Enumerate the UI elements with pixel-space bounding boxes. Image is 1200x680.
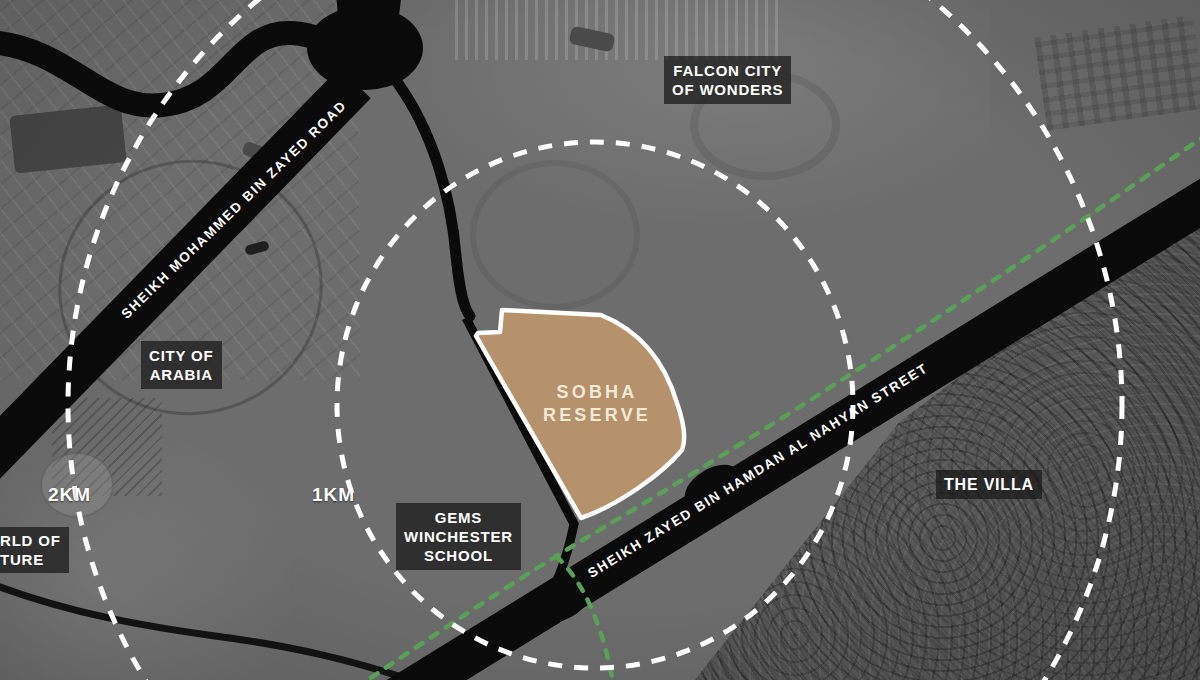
label-city-of-arabia-line2: ARABIA [149, 365, 214, 384]
label-falcon-city-line2: OF WONDERS [672, 80, 783, 99]
label-falcon-city-line1: FALCON CITY [672, 61, 783, 80]
label-gems-school: GEMS WINCHESTER SCHOOL [396, 503, 521, 570]
north-road-stub [336, 0, 402, 54]
radius-marker-2km: 2KM [48, 484, 91, 506]
label-world-of-partial: RLD OF TURE [0, 527, 69, 573]
label-gems-school-line1: GEMS [404, 508, 513, 527]
sobha-reserve-line2: RESERVE [497, 404, 697, 427]
label-the-villa-line1: THE VILLA [944, 475, 1034, 494]
label-gems-school-line3: SCHOOL [404, 546, 513, 565]
radius-marker-1km: 1KM [312, 484, 355, 506]
label-city-of-arabia: CITY OF ARABIA [141, 341, 222, 389]
label-falcon-city: FALCON CITY OF WONDERS [664, 56, 791, 104]
label-the-villa: THE VILLA [936, 470, 1042, 499]
hamdan-street [378, 191, 1200, 680]
label-city-of-arabia-line1: CITY OF [149, 346, 214, 365]
label-world-of-line1: RLD OF [0, 531, 61, 550]
location-map: SHEIKH MOHAMMED BIN ZAYED ROAD SHEIKH ZA… [0, 0, 1200, 680]
label-gems-school-line2: WINCHESTER [404, 527, 513, 546]
label-world-of-line2: TURE [0, 550, 61, 569]
sobha-reserve-label: SOBHA RESERVE [497, 381, 697, 427]
sobha-reserve-line1: SOBHA [497, 381, 697, 404]
map-overlay [0, 0, 1200, 680]
local-road [0, 584, 405, 678]
